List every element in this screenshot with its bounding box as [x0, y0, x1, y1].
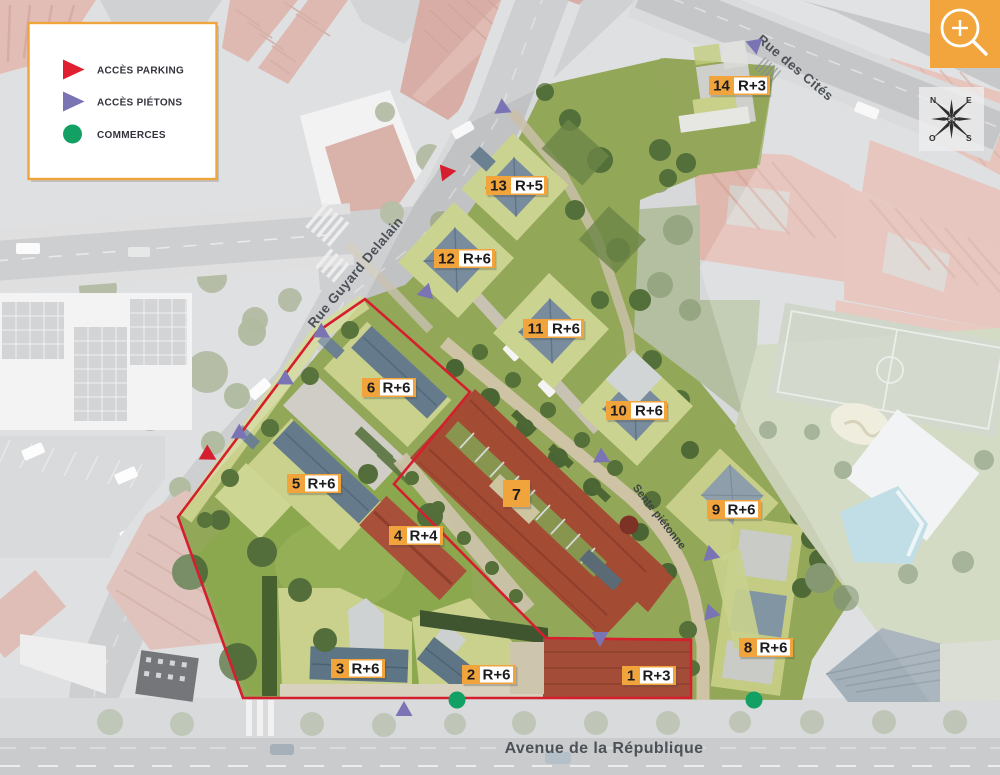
- svg-text:O: O: [929, 133, 936, 143]
- svg-text:14: 14: [713, 78, 730, 95]
- svg-text:R+6: R+6: [352, 661, 380, 678]
- svg-text:R+6: R+6: [383, 380, 411, 397]
- svg-text:9: 9: [712, 502, 720, 519]
- svg-text:E: E: [966, 95, 972, 105]
- svg-text:7: 7: [512, 487, 521, 504]
- svg-text:S: S: [966, 133, 972, 143]
- svg-text:N: N: [930, 95, 936, 105]
- svg-text:R+6: R+6: [308, 476, 336, 493]
- svg-text:4: 4: [394, 528, 403, 545]
- svg-text:R+5: R+5: [515, 178, 543, 195]
- svg-text:12: 12: [438, 251, 455, 268]
- svg-text:2: 2: [467, 667, 475, 684]
- svg-text:ACCÈS PIÉTONS: ACCÈS PIÉTONS: [97, 96, 182, 109]
- svg-text:6: 6: [367, 380, 375, 397]
- svg-text:R+6: R+6: [728, 502, 756, 519]
- svg-text:11: 11: [528, 321, 544, 338]
- svg-text:COMMERCES: COMMERCES: [97, 130, 166, 141]
- svg-text:1: 1: [627, 668, 635, 685]
- svg-text:R+6: R+6: [552, 321, 580, 338]
- svg-text:10: 10: [610, 403, 627, 420]
- svg-text:ACCÈS PARKING: ACCÈS PARKING: [97, 64, 184, 77]
- svg-text:13: 13: [490, 178, 507, 195]
- svg-text:R+6: R+6: [463, 251, 491, 268]
- svg-text:R+6: R+6: [635, 403, 663, 420]
- svg-text:R+6: R+6: [760, 640, 788, 657]
- svg-text:8: 8: [744, 640, 752, 657]
- svg-text:R+6: R+6: [483, 667, 511, 684]
- svg-text:R+3: R+3: [643, 668, 671, 685]
- svg-text:3: 3: [336, 661, 344, 678]
- svg-text:R+4: R+4: [410, 528, 439, 545]
- svg-text:5: 5: [292, 476, 300, 493]
- svg-text:R+3: R+3: [738, 78, 766, 95]
- svg-text:Avenue de la République: Avenue de la République: [505, 740, 704, 757]
